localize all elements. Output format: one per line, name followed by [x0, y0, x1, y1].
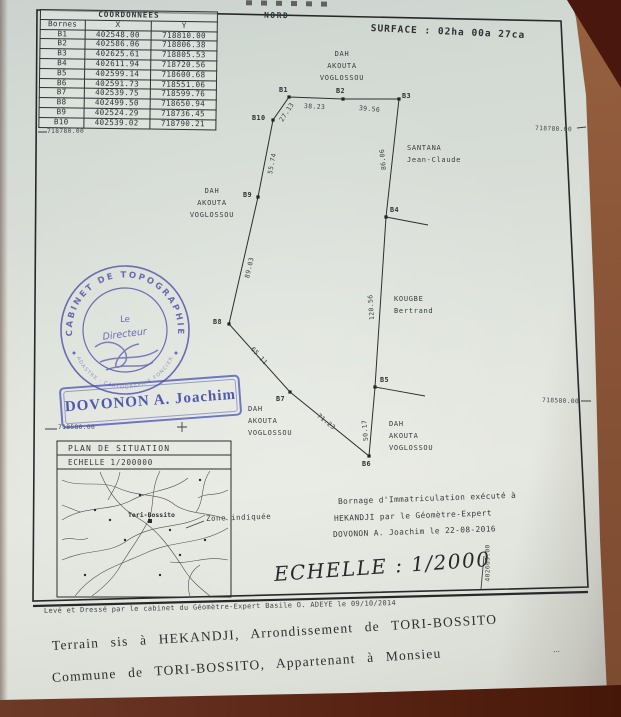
vertex-label: B5: [380, 376, 389, 384]
vertex-label: B7: [276, 395, 285, 403]
table-cell: 402539.02: [83, 118, 149, 129]
name-stamp-inner-border: [63, 379, 238, 425]
grid-coordinate-label: 718580.00: [542, 397, 579, 405]
neighbour-parcel-label: SANTANA Jean-Claude: [407, 142, 461, 166]
vertex-label: B9: [243, 191, 252, 199]
vertex-label: B3: [402, 92, 411, 100]
inset-map-scale: ECHELLE 1/200000: [68, 458, 153, 467]
column-header: Bornes: [40, 19, 85, 29]
grid-coordinate-label: 718780.00: [535, 125, 572, 133]
vertex-label: B4: [390, 206, 399, 214]
table-cell: B10: [39, 117, 84, 127]
edge-length-label: 120.56: [366, 294, 376, 320]
scanned-survey-plan-document: COORDONNEES BornesXY B1402548.00718810.0…: [0, 0, 621, 717]
grid-coordinate-label: 402665.00: [485, 544, 492, 581]
table-cell: B5: [40, 68, 85, 78]
photo-left-edge-shadow: [0, 0, 8, 717]
vertex-label: B2: [336, 87, 345, 95]
vertex-label: B1: [279, 86, 288, 94]
neighbour-parcel-label: DAH AKOUTA VOGLOSSOU: [389, 418, 433, 454]
vertex-label: B8: [213, 318, 222, 326]
neighbour-parcel-label: DAH AKOUTA VOGLOSSOU: [190, 185, 234, 221]
neighbour-parcel-label: DAH AKOUTA VOGLOSSOU: [320, 48, 364, 84]
neighbour-parcel-label: KOUGBE Bertrand: [394, 293, 433, 317]
grid-coordinate-label: 718780.00: [47, 128, 84, 135]
vertex-label: B10: [252, 114, 265, 122]
table-cell: 718790.21: [150, 119, 216, 130]
inset-map-title: PLAN DE SITUATION: [68, 444, 170, 453]
vertex-label: B6: [362, 460, 371, 468]
edge-length-label: 38.23: [304, 102, 326, 111]
neighbour-parcel-label: DAH AKOUTA VOGLOSSOU: [248, 403, 292, 439]
inset-town-label: Tori-Bossito: [128, 511, 175, 519]
trailing-dots: ...: [553, 644, 560, 654]
edge-length-label: 50.17: [360, 419, 370, 441]
coordinates-table: COORDONNEES BornesXY B1402548.00718810.0…: [38, 9, 218, 130]
north-label: NORD: [264, 11, 289, 20]
